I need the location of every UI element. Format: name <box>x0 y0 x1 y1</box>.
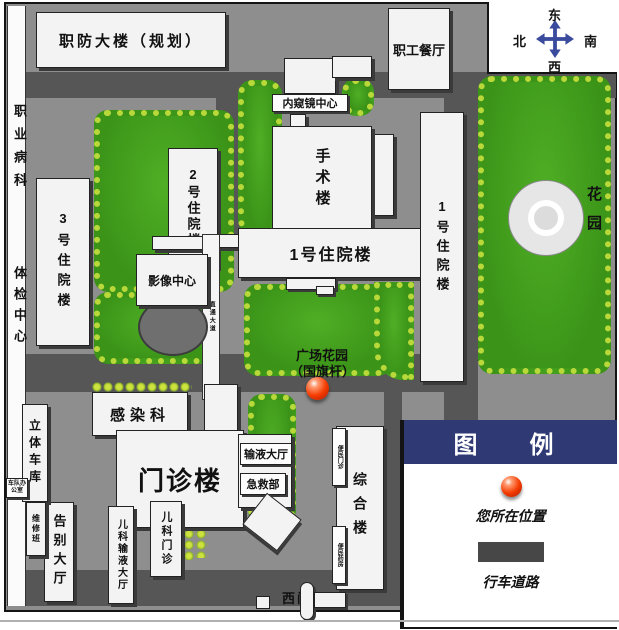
bottom-divider-line <box>0 620 619 622</box>
flower-garden-label: 花园 <box>583 186 604 244</box>
flagpole-step <box>316 286 334 295</box>
building-weixiu: 维修班 <box>26 502 46 556</box>
chedui-label: 车队办公室 <box>7 481 27 494</box>
lawn-plaza-east <box>374 282 414 380</box>
ganranke-label: 感染科 <box>110 404 170 425</box>
jijiu-label-box: 急救部 <box>240 473 286 495</box>
building-erke-shuye: 儿科输液大厅 <box>108 506 134 604</box>
building-yihao-vertical: 1号住院楼 <box>420 112 464 382</box>
shoushu-label: 手术楼 <box>312 148 333 211</box>
imaging-driveway <box>138 298 208 356</box>
west-gate-post <box>300 582 314 620</box>
jijiu-label: 急救部 <box>247 476 280 492</box>
building-connector-2h <box>152 236 206 250</box>
plaza-garden-label-line2: （国旗杆） <box>290 361 355 380</box>
erke-shuye-label: 儿科输液大厅 <box>114 519 129 591</box>
chedui-label-box: 车队办公室 <box>6 478 28 498</box>
hospital-campus-map: 花园 职业病科 体检中心 职防大楼（规划） 职工餐厅 东 西 北 南 内窥镜中心… <box>0 0 619 630</box>
garden-circle-center <box>528 200 564 236</box>
road-marker-square <box>256 596 270 609</box>
compass-bottom-label: 西 <box>548 57 561 76</box>
legend-you-are-here: 您所在位置 <box>404 506 617 526</box>
building-annex-north <box>332 56 372 78</box>
sanhao-label: 3号住院楼 <box>54 211 73 313</box>
bianmin-menzhen-label: 便民门诊 <box>336 445 343 469</box>
legend-road-label: 行车道路 <box>404 572 617 592</box>
garden-circle <box>508 180 584 256</box>
building-gaobie: 告别大厅 <box>44 502 74 602</box>
bianmin-yaofang-box: 便民药房 <box>332 526 346 584</box>
yingxiang-label: 影像中心 <box>148 272 196 289</box>
legend-road-swatch <box>478 542 544 562</box>
building-neikuijing <box>284 58 336 94</box>
compass-left-label: 北 <box>513 31 526 50</box>
bianmin-menzhen-box: 便民门诊 <box>332 428 346 486</box>
corridor-label: 直通大道 <box>208 301 215 333</box>
legend-title: 图 例 <box>454 425 568 460</box>
menzhen-label: 门诊楼 <box>138 461 222 498</box>
building-yihao-horizontal: 1号住院楼 <box>238 228 424 278</box>
building-zhifang: 职防大楼（规划） <box>36 12 226 68</box>
west-gate-booth <box>314 592 346 608</box>
litiche-label: 立体车库 <box>27 419 44 487</box>
zhifang-label: 职防大楼（规划） <box>59 30 203 51</box>
bianmin-yaofang-label: 便民药房 <box>336 543 343 567</box>
weixiu-label: 维修班 <box>31 514 42 544</box>
neikuijing-label: 内窥镜中心 <box>283 95 338 111</box>
building-mz-wing-vertical <box>204 384 238 436</box>
compass-right-label: 南 <box>584 31 597 50</box>
compass-panel: 东 西 北 南 <box>487 2 617 74</box>
legend-location-marker <box>501 476 522 497</box>
building-shoushu: 手术楼 <box>272 126 372 232</box>
erke-menzhen-label: 儿科门诊 <box>158 511 174 567</box>
building-canting: 职工餐厅 <box>388 8 450 90</box>
building-erke-menzhen: 儿科门诊 <box>150 501 182 577</box>
compass-top-label: 东 <box>548 5 561 24</box>
yihao-horizontal-label: 1号住院楼 <box>290 241 373 265</box>
legend-title-bar: 图 例 <box>404 420 617 464</box>
gaobie-label: 告别大厅 <box>50 514 69 590</box>
building-yingxiang: 影像中心 <box>136 254 208 306</box>
shuye-label-box: 输液大厅 <box>240 443 292 465</box>
compass-icon <box>536 20 574 58</box>
building-sanhao: 3号住院楼 <box>36 178 90 346</box>
legend-panel: 图 例 您所在位置 行车道路 <box>400 420 617 629</box>
canting-label: 职工餐厅 <box>393 40 445 59</box>
occupational-disease-label: 职业病科 <box>10 104 29 196</box>
physical-exam-label: 体检中心 <box>10 266 29 350</box>
current-location-marker <box>306 377 329 400</box>
shuye-label: 输液大厅 <box>244 446 288 462</box>
yihao-vertical-label: 1号住院楼 <box>433 199 452 296</box>
neikuijing-label-box: 内窥镜中心 <box>272 94 348 112</box>
zonghe-label: 综合楼 <box>350 472 370 544</box>
